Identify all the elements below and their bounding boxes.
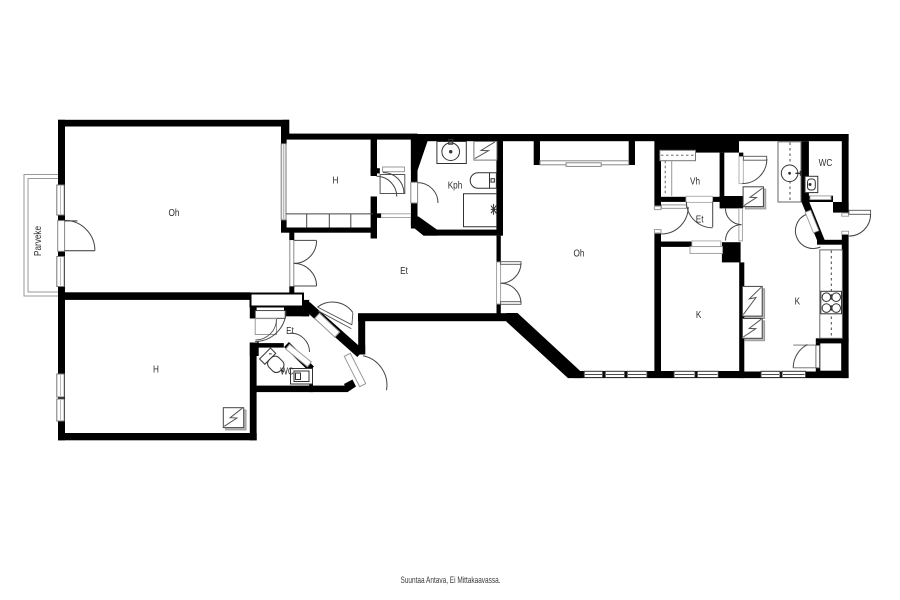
svg-text:Suuntaa Antava, Ei Mittakaavas: Suuntaa Antava, Ei Mittakaavassa. [401,575,501,585]
svg-text:Et: Et [286,325,294,336]
svg-text:Vh: Vh [690,176,700,187]
svg-text:WC: WC [280,366,294,377]
svg-text:Kph: Kph [448,180,463,191]
svg-text:Et: Et [400,265,408,276]
svg-text:Oh: Oh [169,207,180,218]
svg-text:Parveke: Parveke [32,226,43,256]
svg-text:Oh: Oh [574,248,585,259]
svg-text:H: H [153,364,159,375]
svg-text:K: K [795,296,800,307]
svg-text:H: H [333,175,339,186]
svg-text:Et: Et [696,214,704,225]
svg-text:WC: WC [819,157,833,168]
svg-text:K: K [696,309,701,320]
